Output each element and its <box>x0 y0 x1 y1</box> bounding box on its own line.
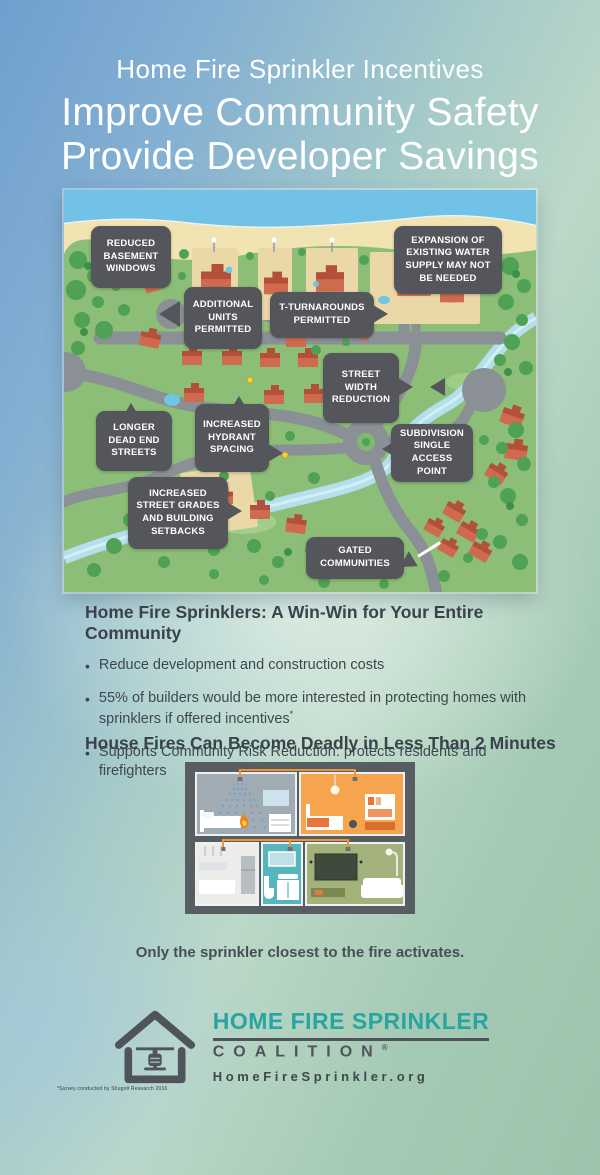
house-sprinkler-icon <box>111 1005 199 1087</box>
map-callout-expansion-water: EXPANSION OF EXISTING WATER SUPPLY MAY N… <box>394 226 502 294</box>
callout-label: INCREASED HYDRANT SPACING <box>201 419 263 457</box>
poster-header: Home Fire Sprinkler Incentives Improve C… <box>0 54 600 178</box>
title-kicker: Home Fire Sprinkler Incentives <box>0 54 600 85</box>
map-callout-gated-communities: GATED COMMUNITIES <box>306 537 404 579</box>
house-cutaway-illustration <box>185 762 415 938</box>
hfsc-logo: HOME FIRE SPRINKLER COALITION® HomeFireS… <box>0 1005 600 1087</box>
map-callout-longer-dead-end: LONGER DEAD END STREETS <box>96 411 172 471</box>
callout-label: INCREASED STREET GRADES AND BUILDING SET… <box>134 488 222 538</box>
map-callout-t-turnarounds: T-TURNAROUNDS PERMITTED <box>270 292 374 338</box>
survey-footnote: *Survey conducted by Shugoll Research 20… <box>57 1086 167 1092</box>
title-line-2: Improve Community Safety <box>0 91 600 135</box>
benefit-text: Reduce development and construction cost… <box>99 656 384 676</box>
benefit-item-1: • Reduce development and construction co… <box>85 656 545 676</box>
benefit-item-2: • 55% of builders would be more interest… <box>85 689 545 730</box>
benefits-heading: Home Fire Sprinklers: A Win-Win for Your… <box>85 602 545 644</box>
logo-name: HOME FIRE SPRINKLER <box>213 1008 490 1035</box>
callout-label: ADDITIONAL UNITS PERMITTED <box>190 299 256 337</box>
map-callout-increased-hydrant: INCREASED HYDRANT SPACING <box>195 404 269 472</box>
map-callout-subdivision-access: SUBDIVISION SINGLE ACCESS POINT <box>391 424 473 482</box>
map-callout-street-width: STREET WIDTH REDUCTION <box>323 353 399 423</box>
bullet-icon: • <box>85 690 90 730</box>
registered-mark: ® <box>382 1043 388 1052</box>
callout-label: REDUCED BASEMENT WINDOWS <box>97 238 165 276</box>
logo-rule <box>213 1038 490 1041</box>
map-arrow-right-t-turnarounds <box>373 305 398 323</box>
callout-label: GATED COMMUNITIES <box>312 545 398 570</box>
logo-subname: COALITION® <box>213 1043 388 1061</box>
bullet-icon: • <box>85 657 90 676</box>
callout-label: EXPANSION OF EXISTING WATER SUPPLY MAY N… <box>400 235 496 285</box>
cul-de-sac-east <box>462 368 506 412</box>
benefit-text: 55% of builders would be more interested… <box>99 689 545 730</box>
map-callout-additional-units: ADDITIONAL UNITS PERMITTED <box>184 287 262 349</box>
logo-text-block: HOME FIRE SPRINKLER COALITION® HomeFireS… <box>213 1008 490 1083</box>
title-line-3: Provide Developer Savings <box>0 135 600 179</box>
map-callout-street-grades: INCREASED STREET GRADES AND BUILDING SET… <box>128 477 228 549</box>
map-arrow-left-street-width <box>420 378 445 396</box>
callout-label: STREET WIDTH REDUCTION <box>329 369 393 407</box>
callout-label: LONGER DEAD END STREETS <box>102 422 166 460</box>
callout-label: T-TURNAROUNDS PERMITTED <box>276 302 368 327</box>
footnote-marker: * <box>290 709 294 719</box>
map-callout-reduced-basement-windows: REDUCED BASEMENT WINDOWS <box>91 226 171 288</box>
callout-label: SUBDIVISION SINGLE ACCESS POINT <box>397 428 467 478</box>
map-arrow-right-street-grades <box>227 502 252 520</box>
house-figure-caption: Only the sprinkler closest to the fire a… <box>0 944 600 961</box>
fire-section-heading: House Fires Can Become Deadly in Less Th… <box>85 733 556 754</box>
map-arrow-right-hydrant <box>268 444 293 462</box>
logo-url: HomeFireSprinkler.org <box>213 1069 429 1084</box>
community-map-panel: REDUCED BASEMENT WINDOWS ADDITIONAL UNIT… <box>64 190 536 592</box>
house-cutaway-figure <box>185 762 415 938</box>
